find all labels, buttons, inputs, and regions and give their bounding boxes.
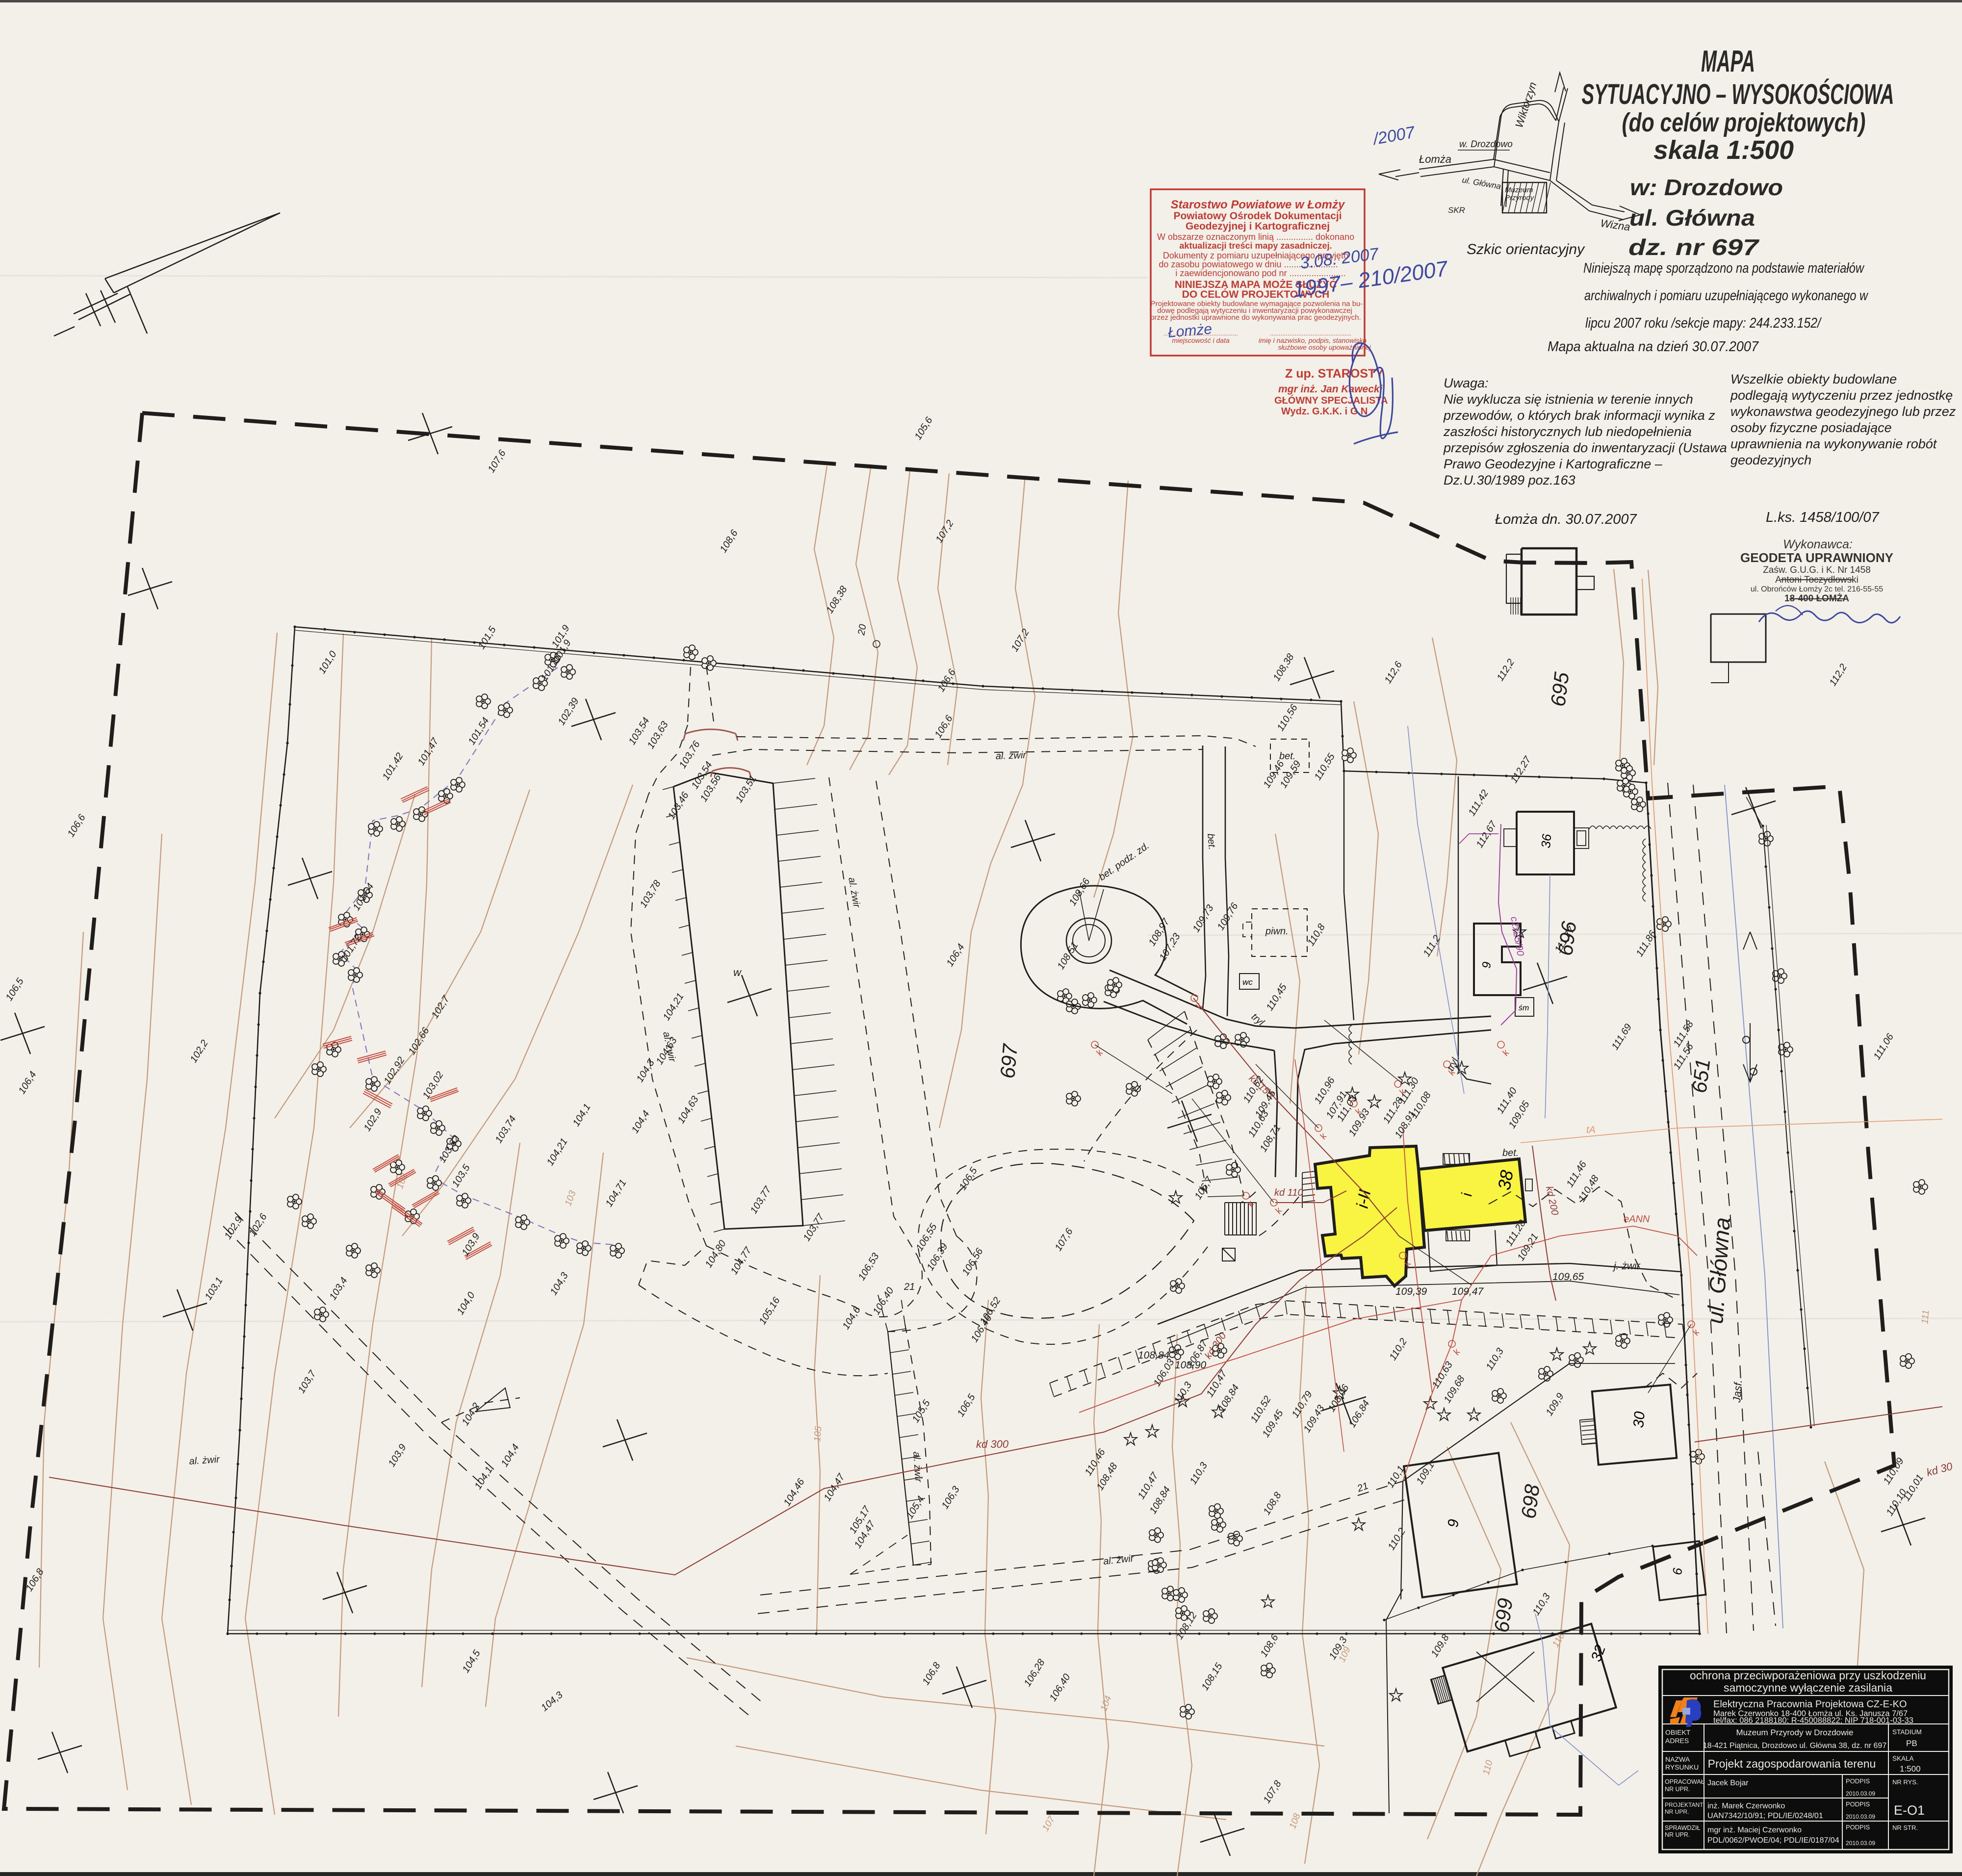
svg-text:RYSUNKU: RYSUNKU [1665, 1763, 1699, 1771]
svg-text:Nie wyklucza się istnienia w t: Nie wyklucza się istnienia w terenie inn… [1444, 392, 1693, 407]
svg-text:..............................: ........................................… [1270, 330, 1351, 337]
svg-text:przez jednostki uprawnione do: przez jednostki uprawnione do wykonywani… [1150, 313, 1361, 322]
svg-text:PODPIS: PODPIS [1846, 1777, 1870, 1785]
svg-text:lipcu 2007 roku /sekcje mapy: lipcu 2007 roku /sekcje mapy: 244.233.15… [1585, 315, 1822, 331]
svg-text:i-II: i-II [1353, 1188, 1374, 1209]
svg-text:Wszelkie obiekty budowlane: Wszelkie obiekty budowlane [1730, 372, 1897, 386]
svg-text:108,84: 108,84 [1138, 1350, 1169, 1361]
svg-text:tel/fax: 086 2188180; R-450088: tel/fax: 086 2188180; R-450088822; NIP 7… [1713, 1716, 1913, 1725]
svg-text:zaszłości historycznych lub ni: zaszłości historycznych lub niedopełnien… [1443, 424, 1692, 439]
svg-text:9: 9 [1445, 1518, 1462, 1528]
svg-text:18-421 Piątnica, Drozdowo ul.: 18-421 Piątnica, Drozdowo ul. Główna 38,… [1703, 1742, 1887, 1750]
svg-text:UAN7342/10/91; PDL/IE/0248/01: UAN7342/10/91; PDL/IE/0248/01 [1707, 1812, 1823, 1820]
svg-text:NAZWA: NAZWA [1665, 1755, 1690, 1763]
svg-text:PDL/0062/PWOE/04; PDL/IE/0187/: PDL/0062/PWOE/04; PDL/IE/0187/04 [1707, 1836, 1839, 1845]
svg-text:Łomża dn. 30.07.2007: Łomża dn. 30.07.2007 [1495, 512, 1637, 527]
svg-text:al. żwir: al. żwir [189, 1454, 221, 1467]
svg-text:Jasf.: Jasf. [1730, 1379, 1744, 1403]
svg-text:osoby fizyczne posiadające: osoby fizyczne posiadające [1730, 420, 1892, 435]
svg-text:Zaśw. G.U.G. i K. Nr 1458: Zaśw. G.U.G. i K. Nr 1458 [1763, 565, 1871, 575]
svg-text:1:500: 1:500 [1900, 1764, 1921, 1773]
svg-text:Muzeum: Muzeum [1505, 186, 1533, 194]
svg-text:697: 697 [996, 1042, 1022, 1079]
svg-text:inż. Marek Czerwonko: inż. Marek Czerwonko [1707, 1802, 1785, 1810]
svg-text:Projekt zagospodarowania teren: Projekt zagospodarowania terenu [1708, 1757, 1876, 1770]
svg-text:Uwaga:: Uwaga: [1444, 376, 1489, 390]
svg-text:ul. Obrońców Łomży 2c tel. 216: ul. Obrońców Łomży 2c tel. 216-55-55 [1751, 585, 1883, 593]
svg-text:NR UPR.: NR UPR. [1665, 1786, 1690, 1793]
svg-text:36: 36 [1538, 833, 1554, 849]
svg-text:L.ks. 1458/100/07: L.ks. 1458/100/07 [1766, 510, 1880, 525]
svg-text:eANN: eANN [1624, 1214, 1650, 1225]
svg-text:30: 30 [1630, 1411, 1648, 1428]
svg-text:108,90: 108,90 [1175, 1360, 1207, 1371]
svg-text:Geodezyjnej i Kartograficznej: Geodezyjnej i Kartograficznej [1186, 221, 1330, 232]
svg-text:Łomża: Łomża [1419, 153, 1451, 165]
svg-text:wykonawstwa geodezyjnego lub p: wykonawstwa geodezyjnego lub przez [1730, 404, 1956, 419]
svg-text:w: Drozdowo: w: Drozdowo [1630, 175, 1783, 200]
svg-text:NR UPR.: NR UPR. [1665, 1808, 1689, 1815]
svg-text:geodezyjnych: geodezyjnych [1730, 453, 1811, 467]
svg-text:MAPA: MAPA [1701, 45, 1755, 78]
svg-text:699: 699 [1490, 1597, 1517, 1634]
svg-text:Dz.U.30/1989 poz.163: Dz.U.30/1989 poz.163 [1444, 473, 1575, 488]
svg-text:uprawnienia na wykonywanie rob: uprawnienia na wykonywanie robót [1730, 437, 1937, 451]
svg-text:archiwalnych i pomiaru uzupełn: archiwalnych i pomiaru uzupełniającego w… [1584, 288, 1869, 304]
svg-text:2010.03.09: 2010.03.09 [1846, 1813, 1875, 1820]
svg-text:Elektryczna Pracownia Projekto: Elektryczna Pracownia Projektowa CZ-E-KO [1713, 1699, 1907, 1710]
svg-text:OPRACOWAŁ: OPRACOWAŁ [1665, 1778, 1704, 1785]
svg-text:Prawo Geodezyjne i Kartografic: Prawo Geodezyjne i Kartograficzne – [1444, 457, 1663, 471]
svg-text:podlegają wytyczeniu przez jed: podlegają wytyczeniu przez jednostkę [1730, 388, 1953, 403]
svg-text:Niniejszą mapę sporządzono na: Niniejszą mapę sporządzono na podstawie … [1583, 260, 1865, 276]
svg-text:Jacek Bojar: Jacek Bojar [1707, 1779, 1749, 1787]
svg-text:wc: wc [1242, 977, 1253, 987]
svg-text:Przyrody: Przyrody [1505, 194, 1535, 202]
svg-text:W obszarze oznaczonym linią ..: W obszarze oznaczonym linią ............… [1157, 232, 1354, 242]
svg-text:OBIEKT: OBIEKT [1665, 1728, 1691, 1736]
svg-text:698: 698 [1517, 1483, 1544, 1520]
svg-text:PODPIS: PODPIS [1846, 1824, 1870, 1831]
svg-text:695: 695 [1546, 670, 1573, 708]
svg-text:dz. nr 697: dz. nr 697 [1628, 234, 1760, 260]
svg-text:STADIUM: STADIUM [1892, 1728, 1922, 1736]
svg-text:109,39: 109,39 [1395, 1286, 1427, 1297]
svg-text:Starostwo Powiatowe w Łomży: Starostwo Powiatowe w Łomży [1171, 198, 1345, 211]
svg-text:aktualizacji treści mapy zasad: aktualizacji treści mapy zasadniczej. [1179, 241, 1332, 251]
svg-text:109,47: 109,47 [1452, 1286, 1484, 1297]
svg-text:38: 38 [1494, 1169, 1517, 1192]
svg-text:bet.: bet. [1205, 833, 1217, 850]
svg-text:Mapa aktualna na dzień 30.07.2: Mapa aktualna na dzień 30.07.2007 [1548, 339, 1759, 355]
svg-text:111: 111 [1920, 1310, 1931, 1325]
svg-text:al. żwir: al. żwir [911, 1451, 924, 1483]
svg-text:mgr inż. Maciej Czerwonko: mgr inż. Maciej Czerwonko [1707, 1826, 1802, 1834]
svg-text:NR UPR.: NR UPR. [1665, 1831, 1690, 1838]
svg-text:GŁÓWNY SPECJALISTA: GŁÓWNY SPECJALISTA [1274, 394, 1388, 406]
svg-text:przepisów zgłoszenia do inwent: przepisów zgłoszenia do inwentaryzacji (… [1443, 440, 1727, 455]
svg-text:bet.: bet. [1502, 1148, 1519, 1158]
svg-text:9: 9 [1480, 961, 1494, 969]
svg-text:20: 20 [856, 623, 869, 637]
svg-text:j. żwir: j. żwir [1612, 1260, 1641, 1272]
svg-text:Powiatowy Ośrodek Dokumentacji: Powiatowy Ośrodek Dokumentacji [1173, 210, 1342, 222]
svg-text:kd 110: kd 110 [1274, 1187, 1303, 1198]
svg-text:SPRAWDZIŁ: SPRAWDZIŁ [1665, 1825, 1701, 1831]
svg-text:SYTUACYJNO – WYSOKOŚCIOWA: SYTUACYJNO – WYSOKOŚCIOWA [1582, 78, 1894, 110]
svg-text:ul. Główna: ul. Główna [1629, 205, 1755, 231]
svg-text:Muzeum Przyrody w Drozdowie: Muzeum Przyrody w Drozdowie [1736, 1728, 1853, 1737]
svg-text:NR RYS.: NR RYS. [1892, 1778, 1918, 1786]
svg-text:GEODETA UPRAWNIONY: GEODETA UPRAWNIONY [1740, 550, 1893, 565]
svg-text:Szkic orientacyjny: Szkic orientacyjny [1467, 241, 1585, 257]
svg-text:skala 1:500: skala 1:500 [1653, 135, 1794, 165]
svg-text:105: 105 [812, 1426, 824, 1442]
svg-text:al. żwir: al. żwir [995, 750, 1027, 762]
svg-text:Wykonawca:: Wykonawca: [1783, 538, 1853, 551]
svg-text:109,65: 109,65 [1552, 1271, 1584, 1283]
svg-text:PROJEKTANT: PROJEKTANT [1665, 1801, 1704, 1808]
svg-text:SKR: SKR [1448, 206, 1465, 215]
svg-text:samoczynne wyłączenie zasilani: samoczynne wyłączenie zasilania [1724, 1681, 1892, 1694]
svg-text:(do celów projektowych): (do celów projektowych) [1622, 108, 1866, 137]
svg-text:2010.03.09: 2010.03.09 [1846, 1790, 1875, 1797]
svg-text:w: w [733, 966, 742, 978]
svg-text:NR STR.: NR STR. [1892, 1824, 1918, 1831]
svg-text:ochrona przeciwporażeniowa prz: ochrona przeciwporażeniowa przy uszkodze… [1690, 1669, 1926, 1682]
svg-text:SKALA: SKALA [1892, 1755, 1914, 1762]
svg-text:696: 696 [1553, 920, 1580, 957]
svg-text:w. Drozdowo: w. Drozdowo [1459, 139, 1513, 150]
svg-text:PB: PB [1906, 1739, 1917, 1748]
svg-text:kd 300: kd 300 [976, 1438, 1009, 1450]
svg-text:śm: śm [1519, 1004, 1529, 1012]
svg-text:Z up. STAROSTY: Z up. STAROSTY [1285, 367, 1384, 381]
svg-text:piwn.: piwn. [1265, 926, 1289, 937]
svg-text:E-O1: E-O1 [1894, 1803, 1925, 1818]
svg-text:651: 651 [1687, 1057, 1714, 1094]
svg-text:tA: tA [1586, 1125, 1596, 1135]
svg-text:PODPIS: PODPIS [1846, 1800, 1870, 1808]
svg-text:przewodów, o których brak info: przewodów, o których brak informacji wyn… [1443, 408, 1715, 423]
svg-text:mgr inż. Jan Kawecki: mgr inż. Jan Kawecki [1278, 384, 1383, 395]
svg-text:21: 21 [904, 1282, 915, 1292]
svg-text:2010.03.09: 2010.03.09 [1846, 1840, 1875, 1847]
svg-text:ADRES: ADRES [1665, 1737, 1689, 1745]
